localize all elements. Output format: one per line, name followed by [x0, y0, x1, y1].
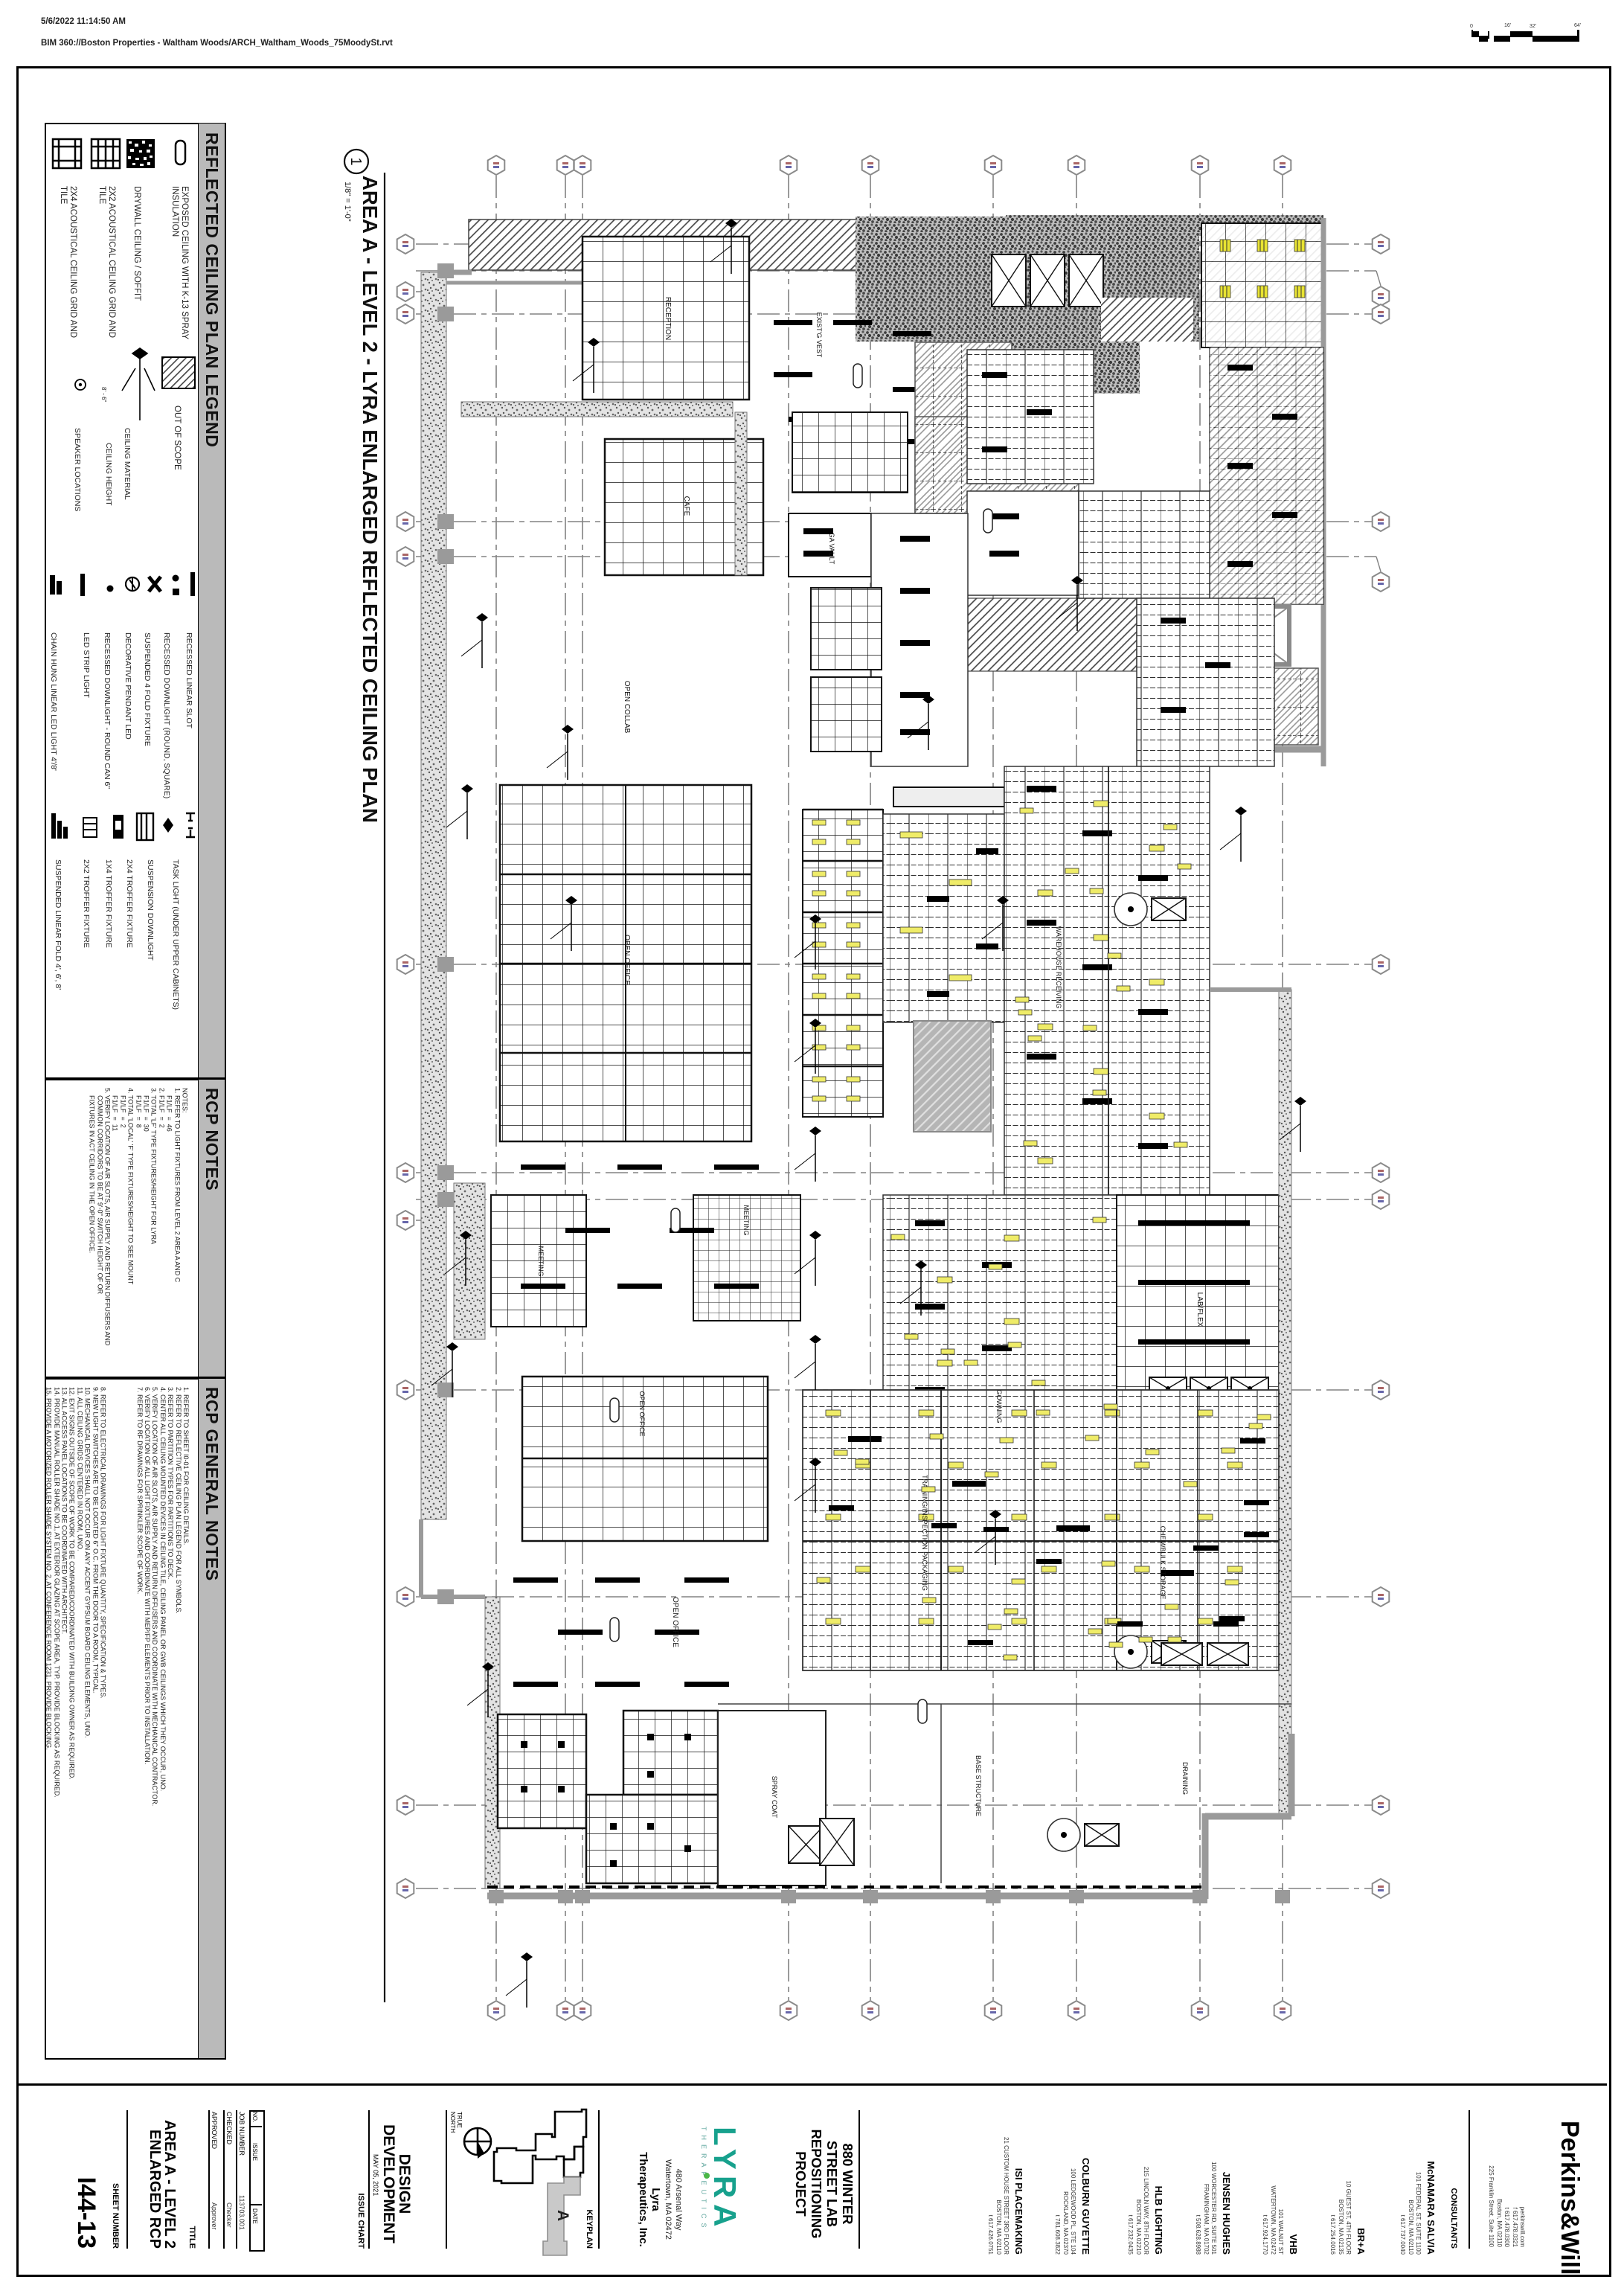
svg-text:TRAINING/INSPECTION PACKAGING: TRAINING/INSPECTION PACKAGING [921, 1475, 928, 1591]
svg-text:CAFE: CAFE [682, 496, 690, 516]
svg-text:AREA A - LEVEL 2 - LYRA ENLARG: AREA A - LEVEL 2 - LYRA ENLARGED REFLECT… [359, 176, 382, 823]
svg-text:MEETING: MEETING [537, 1246, 545, 1276]
svg-text:LAB/FLEX: LAB/FLEX [1195, 1292, 1204, 1327]
svg-text:OPEN COLLAB: OPEN COLLAB [623, 681, 631, 734]
svg-text:MEETING: MEETING [742, 1205, 750, 1235]
svg-text:OPEN OFFICE: OPEN OFFICE [623, 935, 631, 985]
svg-text:OPEN OFFICE: OPEN OFFICE [638, 1391, 646, 1436]
svg-text:RECEPTION: RECEPTION [664, 297, 672, 340]
svg-text:1: 1 [347, 157, 364, 165]
svg-text:GOWNING: GOWNING [995, 1390, 1003, 1423]
svg-text:OPEN OFFICE: OPEN OFFICE [671, 1597, 679, 1647]
svg-text:1/8" = 1'-0": 1/8" = 1'-0" [343, 182, 352, 222]
svg-text:BASE STRUCTURE: BASE STRUCTURE [975, 1755, 982, 1816]
svg-text:WAREHOUSE RECEIVING: WAREHOUSE RECEIVING [1055, 926, 1062, 1009]
svg-text:CHEM/BULK STORAGE: CHEM/BULK STORAGE [1159, 1526, 1166, 1600]
svg-text:EXIST'G VEST: EXIST'G VEST [815, 313, 823, 358]
svg-text:GA VAULT: GA VAULT [828, 533, 835, 565]
svg-text:SPRAY COAT: SPRAY COAT [771, 1776, 778, 1819]
svg-text:DRAINING: DRAINING [1181, 1762, 1189, 1795]
